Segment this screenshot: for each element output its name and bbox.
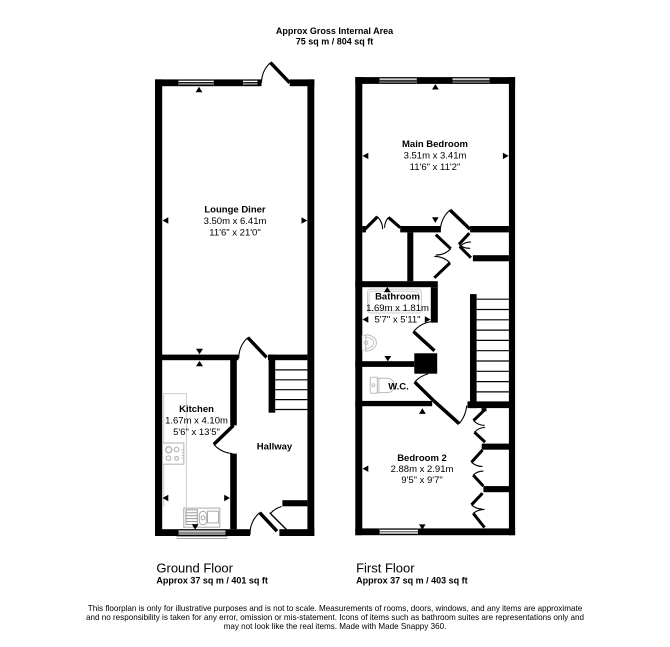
- svg-text:Kitchen: Kitchen: [179, 404, 214, 415]
- svg-text:Bathroom: Bathroom: [375, 292, 420, 303]
- svg-text:3.50m x 6.41m: 3.50m x 6.41m: [204, 216, 267, 227]
- svg-text:This floorplan is only for ill: This floorplan is only for illustrative …: [88, 604, 583, 613]
- svg-text:9'5" x 9'7": 9'5" x 9'7": [401, 475, 443, 486]
- svg-text:Approx 37 sq m / 401 sq ft: Approx 37 sq m / 401 sq ft: [156, 575, 268, 585]
- svg-text:3.51m x 3.41m: 3.51m x 3.41m: [404, 151, 467, 162]
- svg-text:Hallway: Hallway: [257, 442, 293, 453]
- svg-text:11'6" x 21'0": 11'6" x 21'0": [209, 228, 260, 239]
- svg-text:Bedroom 2: Bedroom 2: [397, 453, 447, 464]
- svg-text:2.88m x 2.91m: 2.88m x 2.91m: [391, 464, 454, 475]
- svg-text:and no responsibility is taken: and no responsibility is taken for any e…: [86, 613, 584, 622]
- svg-text:1.67m x 4.10m: 1.67m x 4.10m: [165, 416, 228, 427]
- svg-text:First Floor: First Floor: [356, 561, 415, 576]
- svg-text:Approx Gross Internal Area: Approx Gross Internal Area: [276, 26, 394, 36]
- svg-text:Lounge Diner: Lounge Diner: [204, 205, 266, 216]
- svg-text:Main Bedroom: Main Bedroom: [402, 139, 468, 150]
- svg-text:75 sq m / 804 sq ft: 75 sq m / 804 sq ft: [296, 37, 374, 47]
- svg-text:5'6" x 13'5": 5'6" x 13'5": [173, 427, 220, 438]
- svg-text:5'7" x 5'11": 5'7" x 5'11": [374, 315, 420, 326]
- svg-text:1.69m x 1.81m: 1.69m x 1.81m: [366, 303, 429, 314]
- svg-text:Ground Floor: Ground Floor: [156, 561, 233, 576]
- svg-text:11'6" x 11'2": 11'6" x 11'2": [410, 162, 461, 173]
- svg-text:W.C.: W.C.: [388, 382, 409, 393]
- svg-text:Approx 37 sq m / 403 sq ft: Approx 37 sq m / 403 sq ft: [356, 575, 468, 585]
- svg-text:may not look like the real ite: may not look like the real items. Made w…: [224, 622, 447, 631]
